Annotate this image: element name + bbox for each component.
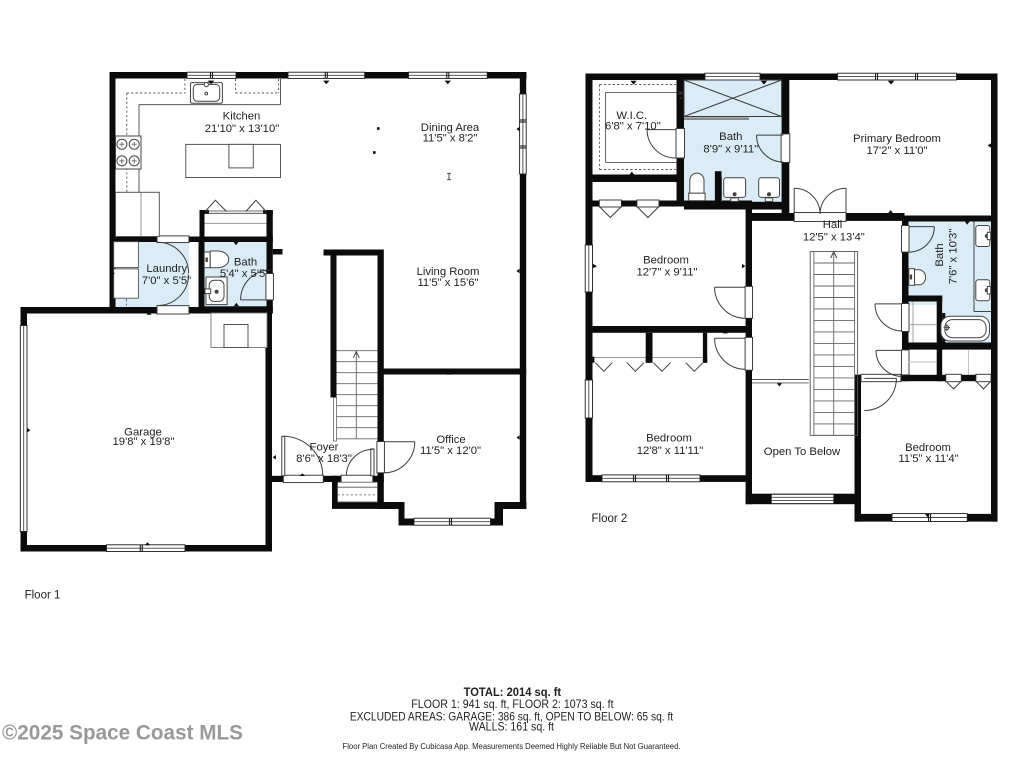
svg-text:Laundry: Laundry	[146, 263, 187, 275]
svg-text:19'8" x 19'8": 19'8" x 19'8"	[113, 436, 175, 448]
svg-text:Foyer: Foyer	[310, 442, 339, 454]
svg-text:12'7" x 9'11": 12'7" x 9'11"	[636, 266, 697, 278]
svg-text:Bedroom: Bedroom	[643, 255, 689, 267]
svg-text:6'8" x 7'10": 6'8" x 7'10"	[605, 121, 661, 133]
svg-text:Hall: Hall	[823, 219, 842, 231]
svg-text:Floor Plan Created By Cubicasa: Floor Plan Created By Cubicasa App. Meas…	[343, 742, 681, 751]
svg-text:Bath: Bath	[719, 131, 742, 143]
svg-text:7'6" x 10'3": 7'6" x 10'3"	[948, 229, 960, 285]
svg-text:Floor 1: Floor 1	[25, 590, 61, 602]
svg-text:Bath: Bath	[934, 243, 946, 266]
svg-text:Primary Bedroom: Primary Bedroom	[853, 133, 941, 145]
svg-text:8'9" x 9'11": 8'9" x 9'11"	[703, 143, 758, 155]
svg-text:5'4" x 5'5": 5'4" x 5'5"	[220, 268, 269, 280]
svg-text:21'10" x 13'10": 21'10" x 13'10"	[205, 123, 280, 135]
svg-text:11'5" x 11'4": 11'5" x 11'4"	[898, 453, 958, 465]
svg-text:8'6" x 18'3": 8'6" x 18'3"	[296, 453, 352, 465]
svg-text:17'2" x 11'0": 17'2" x 11'0"	[866, 145, 927, 157]
svg-text:Floor 2: Floor 2	[592, 513, 628, 525]
svg-text:WALLS: 161 sq. ft: WALLS: 161 sq. ft	[469, 720, 555, 734]
svg-text:Bath: Bath	[234, 257, 257, 269]
svg-text:11'5" x 8'2": 11'5" x 8'2"	[423, 133, 478, 145]
svg-text:Kitchen: Kitchen	[223, 111, 261, 123]
svg-text:11'5" x 12'0": 11'5" x 12'0"	[420, 445, 481, 457]
svg-text:12'8" x 11'11": 12'8" x 11'11"	[637, 445, 704, 457]
svg-text:12'5" x 13'4": 12'5" x 13'4"	[803, 232, 865, 244]
svg-text:Bedroom: Bedroom	[646, 433, 692, 445]
svg-text:11'5" x 15'6": 11'5" x 15'6"	[417, 277, 478, 289]
svg-text:Open To Below: Open To Below	[764, 446, 841, 458]
svg-text:©2025 Space Coast MLS: ©2025 Space Coast MLS	[2, 722, 243, 745]
svg-text:7'0" x 5'5": 7'0" x 5'5"	[142, 275, 191, 287]
